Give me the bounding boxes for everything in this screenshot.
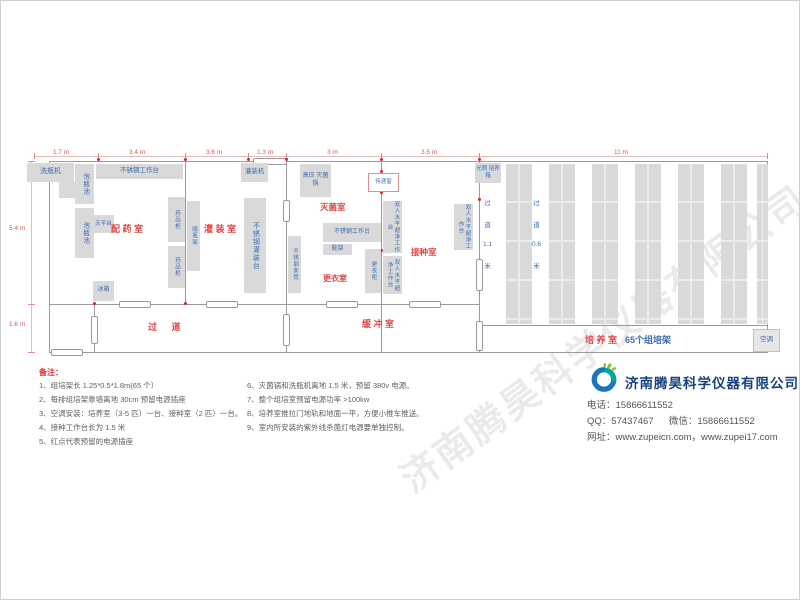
fridge-box: 冰箱 (93, 281, 114, 301)
room-label-dispensing: 配 药 室 (111, 222, 143, 235)
qq-value: 57437467 (611, 416, 653, 427)
company-name: 济南腾昊科学仪器有限公司 (625, 372, 799, 392)
dim-label-5: 3 m (327, 149, 338, 156)
door-filling (206, 301, 238, 308)
note-line-4: 4、接种工作台长为 1.5 米 (39, 422, 125, 433)
outlet-dot (184, 302, 187, 305)
aisle-char: 0.6 (532, 241, 541, 248)
pass-window-box: 传递窗 (368, 173, 399, 192)
aisle-label-0.6m: 过 道 0.6 米 (532, 197, 541, 270)
autoclave-box: 高压 灭菌锅 (300, 164, 331, 197)
company-web-line: 网址：www.zupeicn.com，www.zupei17.com (587, 429, 778, 443)
room-label-filling: 灌 装 室 (204, 222, 236, 235)
wall-left (49, 161, 50, 353)
culture-rack-column (549, 164, 575, 324)
aisle-char: 过 (533, 197, 540, 207)
dim-label-3: 3.6 m (206, 149, 222, 156)
wechat-value: 15866611552 (697, 416, 754, 427)
door-buffer (409, 301, 441, 308)
culture-rack-count-label: 65个组培架 (625, 333, 671, 346)
aisle-label-1.1m: 过 道 1.1 米 (483, 197, 492, 270)
door-buffer-culture (476, 321, 483, 351)
qq-label: QQ： (587, 416, 611, 427)
outlet-dot (285, 158, 288, 161)
door-dressing (326, 301, 358, 308)
room-label-culture: 培 养 室 (585, 333, 617, 346)
culture-rack-column (635, 164, 661, 324)
dim-tick (28, 352, 35, 353)
note-line-8: 8、培养室推拉门地轨和地面一平，方便小推车推送。 (247, 408, 424, 419)
note-line-5: 5、红点代表预留的电源插座 (39, 436, 133, 447)
medicine-cabinet-box-1: 药品柜 (168, 197, 185, 242)
aisle-char: 过 (484, 197, 491, 207)
floorplan-sheet: 济南腾昊科学仪器有限公司 1.7 m 3.4 m 3.6 m 1.3 m 3 m… (0, 0, 800, 600)
door-bottom-left (51, 349, 83, 356)
dim-label-left-2: 1.6 m (9, 321, 25, 328)
phone-label: 电话： (587, 400, 616, 411)
aisle-char: 米 (533, 260, 540, 270)
air-conditioner-box: 空调 (753, 329, 780, 352)
dim-label-6: 3.5 m (421, 149, 437, 156)
svg-text:z: z (600, 376, 604, 385)
phone-value: 15866611552 (616, 400, 673, 411)
outlet-dot (184, 158, 187, 161)
culture-rack-column (592, 164, 618, 324)
wall-top (49, 161, 768, 162)
door-sterilizing (283, 200, 290, 222)
wall-bottom (49, 352, 768, 353)
company-qq-line: QQ：57437467 微信：15866611552 (587, 413, 755, 427)
room-label-corridor: 过 道 (148, 320, 187, 333)
door-corridor-left (91, 316, 98, 344)
dim-label-left-1: 5.4 m (9, 225, 25, 232)
steel-worktable-box-1: 不锈钢工作台 (96, 164, 183, 179)
note-line-6: 6、灭菌锅和洗瓶机离地 1.5 米，预留 380v 电源。 (247, 380, 414, 391)
outlet-dot (478, 158, 481, 161)
dim-tick (34, 153, 35, 159)
dim-tick (28, 304, 35, 305)
room-label-buffer: 缓 冲 室 (362, 317, 394, 330)
light-incubator-box: 光照 培养箱 (475, 163, 501, 183)
outlet-dot (97, 158, 100, 161)
filling-machine-box: 灌装机 (241, 163, 268, 182)
room-label-sterilizing: 灭菌室 (320, 201, 346, 213)
soak-pool-box-2: 泡瓶池 (75, 208, 94, 258)
soak-pool-box-1: 泡瓶池 (75, 164, 94, 204)
clean-bench-box-1: 双人水平超净工作台 (383, 201, 402, 253)
steel-filling-bench-box: 不锈钢灌装台 (244, 198, 266, 293)
dim-label-7: 11 m (614, 149, 628, 156)
door-corridor-buffer (283, 314, 290, 346)
web-value: www.zupeicn.com，www.zupei17.com (616, 432, 778, 443)
note-line-3: 3、空调安装：培养室（3-5 匹）一台、接种室（2 匹）一台。 (39, 408, 242, 419)
bottle-washer-box: 洗瓶机 (27, 163, 74, 182)
note-line-7: 7、整个组培室预留电源功率 >100kw (247, 394, 369, 405)
aisle-char: 1.1 (483, 241, 492, 248)
top-dimension-line (34, 156, 768, 157)
outlet-dot (93, 302, 96, 305)
dim-tick (28, 161, 35, 162)
room-label-dressing: 更衣室 (323, 273, 347, 284)
culture-rack-column (678, 164, 704, 324)
aisle-char: 道 (533, 219, 540, 229)
outlet-dot (247, 158, 250, 161)
aisle-char: 米 (484, 260, 491, 270)
shoe-rack-box: 鞋架 (323, 244, 352, 255)
medicine-cabinet-box-2: 药品柜 (168, 246, 185, 288)
dim-label-4: 1.3 m (257, 149, 273, 156)
clean-bench-box-3: 双人水平超净工作台 (454, 204, 473, 250)
steel-bench-box: 不锈钢条凳 (288, 236, 301, 293)
note-line-1: 1、组培架长 1.25*0.5*1.8m(65 个） (39, 380, 158, 391)
notes-title: 备注： (39, 367, 63, 378)
note-line-2: 2、每排组培架靠墙离地 30cm 预留电源插座 (39, 394, 186, 405)
wall-dispensing-filling (185, 161, 186, 304)
room-label-inoculation: 接种室 (411, 246, 437, 258)
company-logo-icon: z (589, 363, 619, 393)
culture-rack-column (506, 164, 532, 324)
dim-label-2: 3.4 m (129, 149, 145, 156)
door-inoculation-culture (476, 259, 483, 291)
locker-box: 更衣柜 (365, 249, 381, 293)
company-phone-line: 电话：15866611552 (587, 397, 673, 411)
culture-rack-column (757, 164, 768, 324)
left-dimension-line (31, 161, 32, 353)
note-line-9: 9、室内所安装的紫外线杀菌灯电源要单独控制。 (247, 422, 409, 433)
door-dispensing (119, 301, 151, 308)
bottle-rack-box: 顺瓶架 (187, 201, 200, 271)
clean-bench-box-2: 双人水平超净工作台 (383, 256, 402, 294)
aisle-char: 道 (484, 219, 491, 229)
wall-culture-bottom-strip (479, 325, 768, 326)
outlet-dot (380, 158, 383, 161)
wechat-label: 微信： (669, 416, 698, 427)
web-label: 网址： (587, 432, 616, 443)
outlet-dot (478, 198, 481, 201)
culture-rack-column (721, 164, 747, 324)
dim-label-1: 1.7 m (53, 149, 69, 156)
dim-tick (767, 153, 768, 159)
steel-worktable-box-2: 不锈钢工作台 (323, 223, 381, 242)
